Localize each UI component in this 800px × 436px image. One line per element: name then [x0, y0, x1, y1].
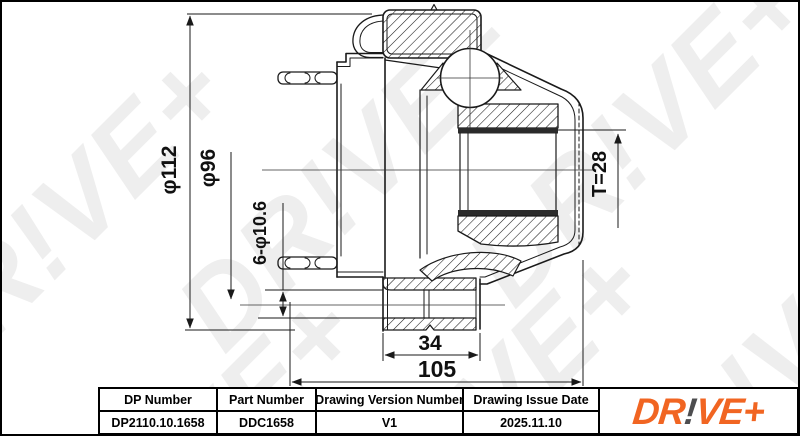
table-value-dp-number: DP2110.10.1658 — [100, 412, 218, 433]
watermark-layer: DR!VE+ DR!VE+ DR!VE+ DR!VE+ DR!VE+ DR!VE… — [0, 0, 800, 436]
technical-drawing-canvas: DR!VE+ DR!VE+ DR!VE+ DR!VE+ DR!VE+ DR!VE… — [0, 0, 800, 436]
title-block-table: DP Number Part Number Drawing Version Nu… — [98, 387, 799, 435]
neck-top-wall — [383, 278, 476, 290]
dim-label-34: 34 — [418, 332, 442, 355]
table-value-drawing-version: V1 — [317, 412, 464, 433]
crimp-tab-top — [278, 72, 337, 84]
dim-label-105: 105 — [418, 356, 457, 382]
drive-plus-logo: DR!VE+ — [631, 393, 766, 430]
dim-label-holes: 6-φ10.6 — [250, 201, 270, 265]
table-value-issue-date: 2025.11.10 — [464, 412, 600, 433]
logo-prefix: DR — [631, 391, 687, 432]
table-header-issue-date: Drawing Issue Date — [464, 389, 600, 412]
table-header-dp-number: DP Number — [100, 389, 218, 412]
logo-suffix: VE+ — [694, 391, 766, 432]
dim-label-phi96: φ96 — [197, 149, 220, 187]
neck-bottom-wall — [383, 318, 476, 330]
table-value-part-number: DDC1658 — [218, 412, 317, 433]
logo-cell: DR!VE+ — [600, 389, 797, 433]
table-header-drawing-version: Drawing Version Number — [317, 389, 464, 412]
dim-label-phi112: φ112 — [158, 146, 181, 195]
table-header-part-number: Part Number — [218, 389, 317, 412]
drawing-sheet: DR!VE+ DR!VE+ DR!VE+ DR!VE+ DR!VE+ DR!VE… — [0, 0, 800, 436]
dim-label-spline: T=28 — [589, 151, 611, 197]
